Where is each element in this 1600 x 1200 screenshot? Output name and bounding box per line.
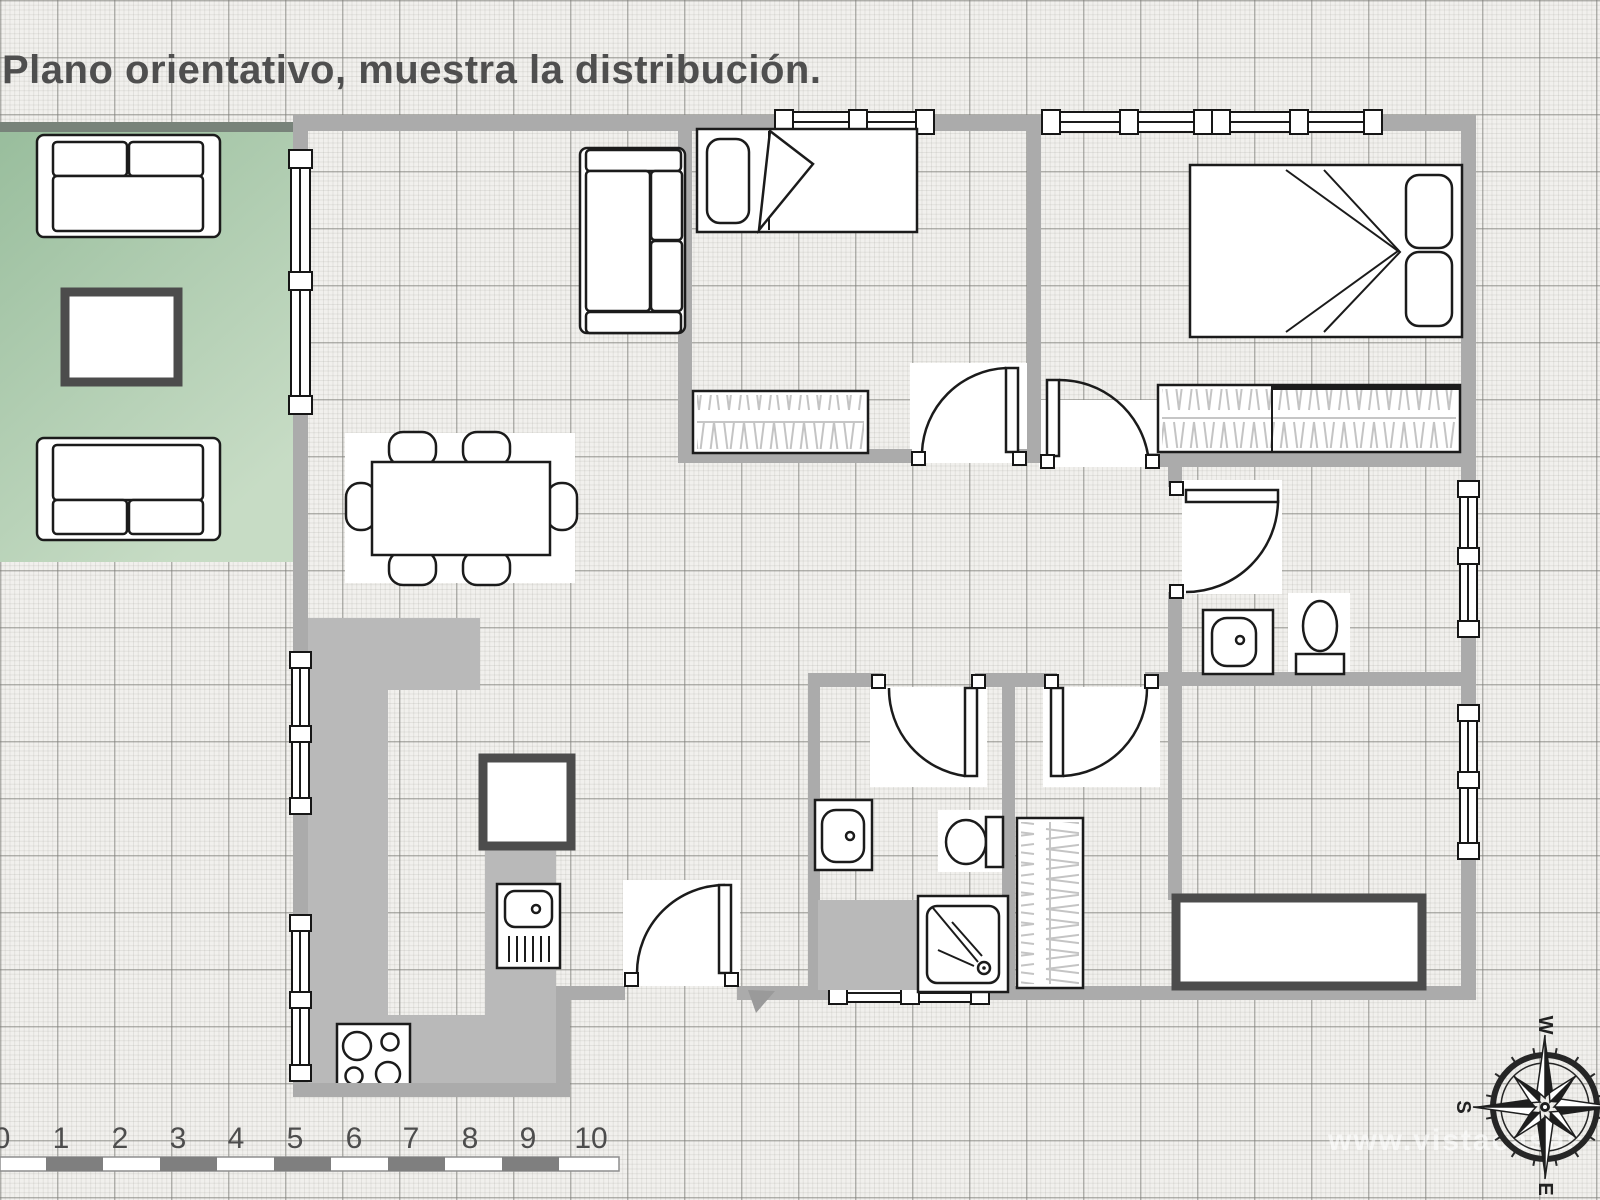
- window-right-lower: [1458, 705, 1479, 859]
- double-bed: [1190, 165, 1462, 337]
- window-bedroom2-b: [1212, 110, 1382, 134]
- living-sofa: [580, 148, 685, 333]
- chair: [547, 483, 577, 530]
- terrace-sofa-top: [37, 135, 220, 237]
- terrace-coffee-table: [65, 292, 178, 382]
- compass-east-label: E: [1534, 1182, 1556, 1195]
- scale-ruler: [0, 1157, 619, 1171]
- compass-rose: W S E: [1452, 1016, 1600, 1196]
- bathroom2-sink: [815, 800, 872, 870]
- wardrobe-vertical: [1017, 818, 1083, 988]
- terrace-top-edge: [0, 122, 293, 132]
- scale-label: 1: [53, 1122, 70, 1155]
- scale-label: 8: [462, 1122, 479, 1155]
- compass-south-label: S: [1452, 1100, 1474, 1113]
- scale-label: 7: [403, 1122, 420, 1155]
- pillow: [1406, 252, 1452, 326]
- kitchen-sink: [497, 884, 560, 968]
- scale-label: 6: [346, 1122, 363, 1155]
- bathroom-sink: [1203, 610, 1273, 674]
- floor-plan: Plano orientativo, muestra la distribuci…: [0, 0, 1600, 1200]
- scale-label: 9: [520, 1122, 537, 1155]
- page-title: Plano orientativo, muestra la distribuci…: [2, 48, 821, 92]
- toilet-2: [946, 817, 1003, 867]
- window-bedroom2-a: [1042, 110, 1212, 134]
- scale-label: 3: [170, 1122, 187, 1155]
- scale-label: 2: [112, 1122, 129, 1155]
- window-kitchen-upper: [290, 652, 311, 814]
- scale-label: 0: [0, 1122, 10, 1155]
- window-living: [289, 150, 312, 414]
- fridge: [483, 758, 571, 846]
- scale-label: 4: [228, 1122, 245, 1155]
- single-bed: [697, 129, 917, 232]
- pillow: [1406, 175, 1452, 248]
- scale-label: 5: [287, 1122, 304, 1155]
- kitchen-counter: [306, 618, 556, 1085]
- terrace-sofa-bottom: [37, 438, 220, 540]
- window-right-upper: [1458, 481, 1479, 637]
- pillow: [707, 139, 749, 223]
- scale-bar: 0 1 2 3 4 5 6 7 8 9 10: [0, 1122, 619, 1171]
- bath-counter: [818, 900, 918, 990]
- shower: [918, 896, 1008, 992]
- compass-west-label: W: [1534, 1016, 1556, 1035]
- wardrobe-bedroom2: [1158, 385, 1460, 452]
- entrance-marker: [748, 990, 775, 1013]
- wardrobe-bedroom1: [693, 391, 868, 453]
- wall-kitchen-bottom: [293, 1083, 570, 1097]
- window-kitchen-lower: [290, 915, 311, 1081]
- scale-label: 10: [574, 1122, 607, 1155]
- sideboard-desk: [1176, 898, 1422, 986]
